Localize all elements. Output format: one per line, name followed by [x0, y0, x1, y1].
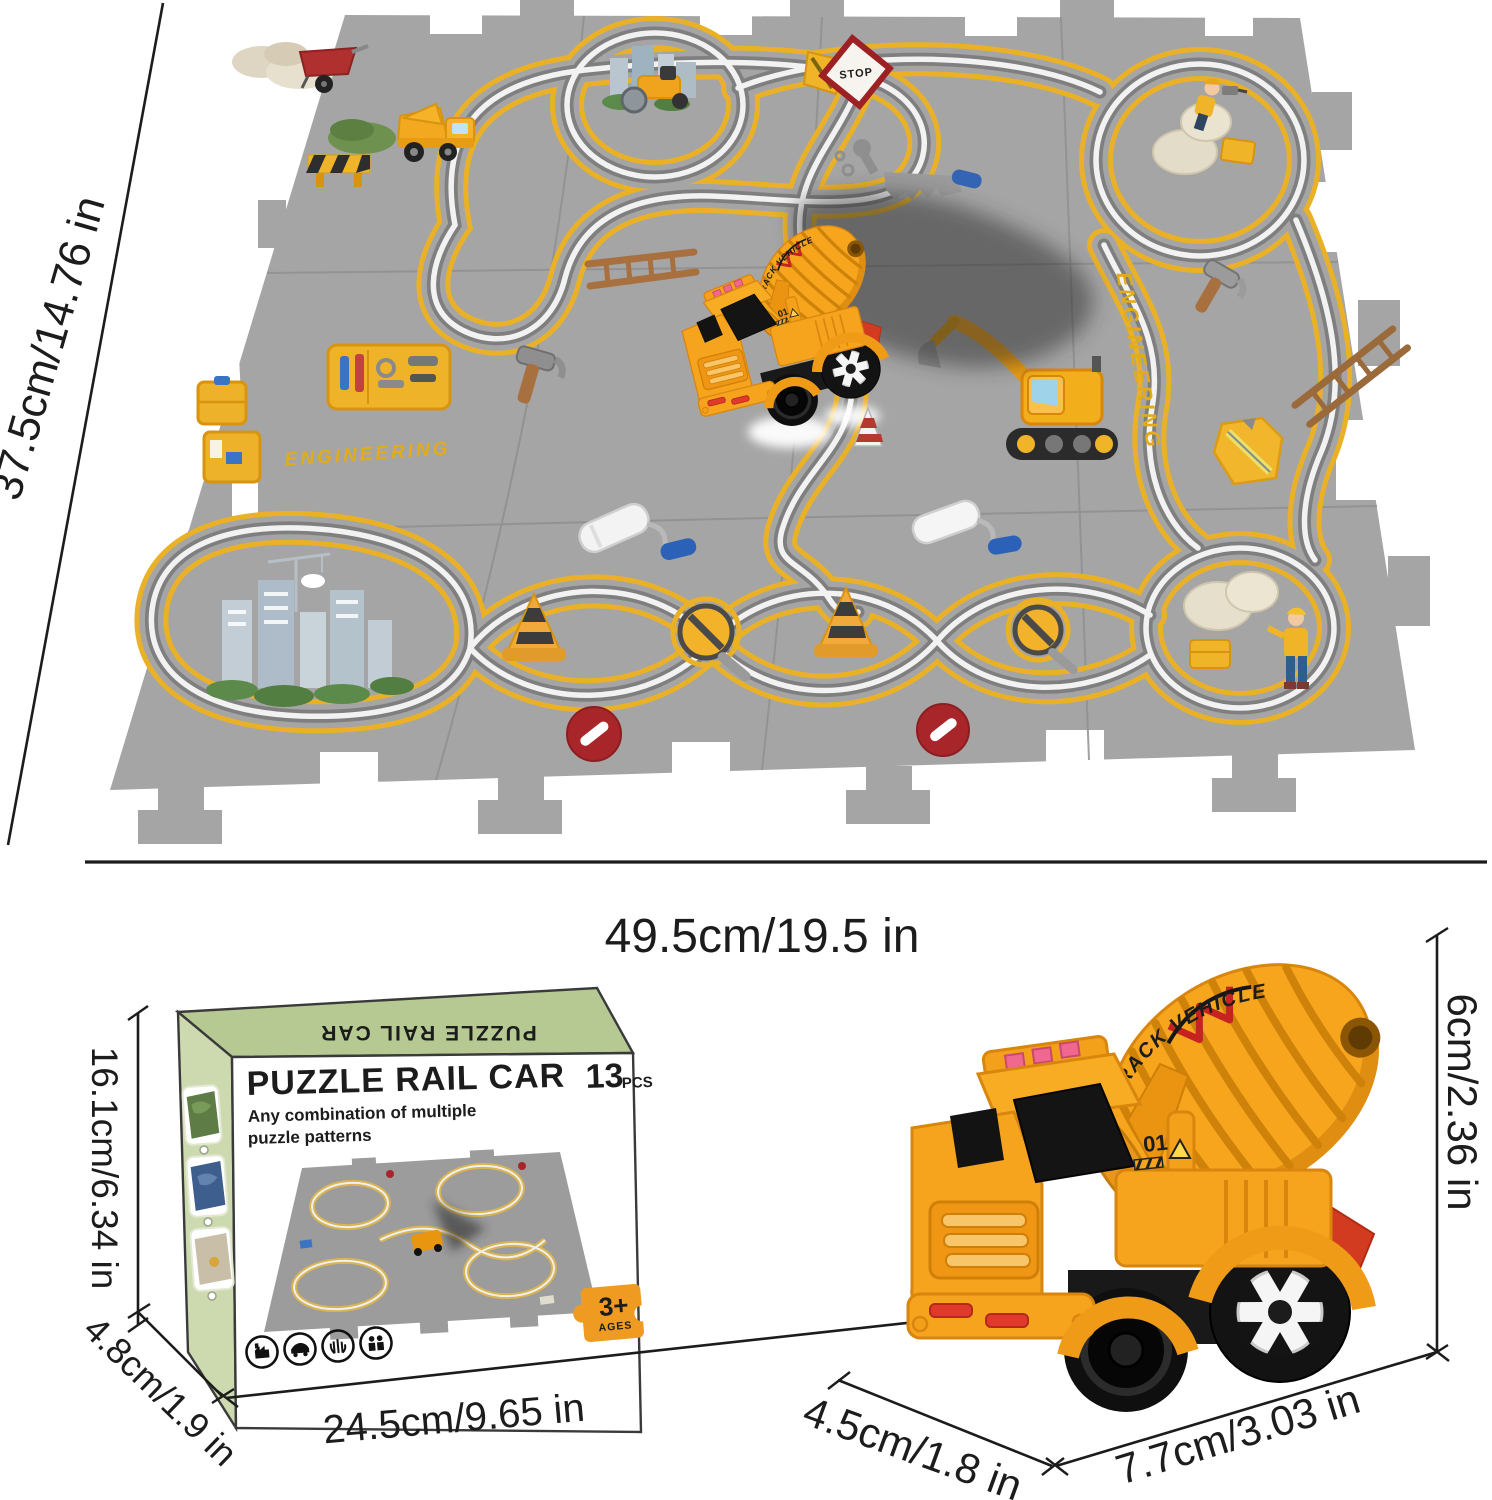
no-entry-icon-2 — [917, 704, 969, 756]
box-pieces-number: 13 — [585, 1057, 624, 1096]
box-mat-artwork — [264, 1149, 598, 1339]
box-flap-text: PUZZLE RAIL CAR — [319, 1021, 536, 1044]
toy-truck — [908, 916, 1417, 1412]
no-entry-icon — [567, 707, 621, 761]
play-mat: STOP — [110, 0, 1430, 844]
toolbox-icon — [328, 345, 450, 409]
diagram-canvas: TRACK VEHICLE — [0, 0, 1492, 1500]
box-subtitle-line2: puzzle patterns — [248, 1126, 372, 1148]
truck-height-label: 6cm/2.36 in — [1439, 993, 1486, 1210]
box-height-label: 16.1cm/6.34 in — [84, 1047, 125, 1290]
mat-width-label: 49.5cm/19.5 in — [605, 910, 920, 963]
mat-height-label: 37.5cm/14.76 in — [0, 191, 115, 505]
product-size-diagram: TRACK VEHICLE — [0, 0, 1492, 1500]
age-number: 3+ — [598, 1290, 630, 1322]
box-pieces-unit: PCS — [622, 1074, 653, 1092]
